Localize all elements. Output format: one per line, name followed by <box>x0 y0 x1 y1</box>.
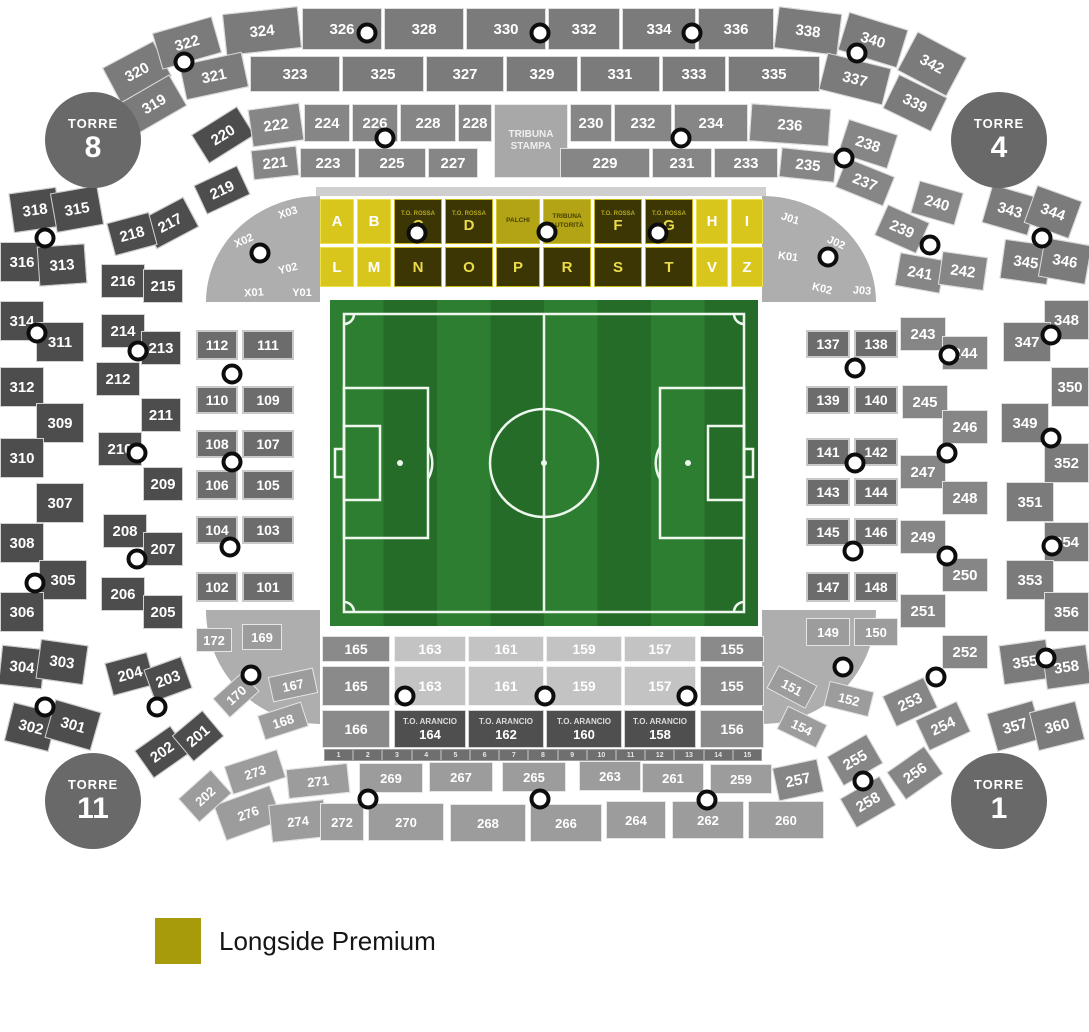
section-label: 237 <box>851 170 880 193</box>
section-328[interactable]: 328 <box>384 8 464 50</box>
section-143[interactable]: 143 <box>806 478 850 506</box>
section-label: A <box>332 214 343 229</box>
section-label: 358 <box>1053 658 1080 676</box>
section-label: 273 <box>243 762 268 781</box>
section-label: 270 <box>395 816 417 829</box>
section-label: 147 <box>816 580 839 594</box>
gate-marker <box>530 23 551 44</box>
section-label: 108 <box>205 437 228 451</box>
section-label: 202 <box>147 739 176 766</box>
section-palchi[interactable]: PALCHI <box>496 199 540 244</box>
section-label: 140 <box>864 393 887 407</box>
tower-number: 1 <box>991 792 1008 826</box>
section-label: 343 <box>996 199 1024 220</box>
section-label: 236 <box>777 117 803 134</box>
section-264[interactable]: 264 <box>606 801 666 839</box>
section-268[interactable]: 268 <box>450 804 526 842</box>
section-144[interactable]: 144 <box>854 478 898 506</box>
section-246[interactable]: 246 <box>942 410 988 444</box>
section-209[interactable]: 209 <box>143 467 183 501</box>
section-label: 263 <box>599 770 621 783</box>
section-212[interactable]: 212 <box>96 362 140 396</box>
section-label: 161 <box>494 642 517 656</box>
section-label: 217 <box>155 211 184 236</box>
section-325[interactable]: 325 <box>342 56 424 92</box>
section-147[interactable]: 147 <box>806 572 850 602</box>
section-106[interactable]: 106 <box>196 470 238 500</box>
section-i[interactable]: I <box>731 199 763 244</box>
section-label: 168 <box>271 711 296 730</box>
section-p[interactable]: P <box>496 247 540 287</box>
section-label: 162 <box>495 728 517 741</box>
tower-number: 11 <box>77 792 109 826</box>
section-label: 332 <box>571 22 596 37</box>
section-label: 312 <box>9 380 34 395</box>
section-303[interactable]: 303 <box>35 639 88 685</box>
section-137[interactable]: 137 <box>806 330 850 358</box>
section-274[interactable]: 274 <box>268 799 328 843</box>
section-315[interactable]: 315 <box>50 185 104 233</box>
section-160[interactable]: T.O. ARANCIO160 <box>546 710 622 748</box>
section-label: 344 <box>1039 201 1068 224</box>
section-241[interactable]: 241 <box>894 252 945 293</box>
section-324[interactable]: 324 <box>222 6 302 56</box>
section-m[interactable]: M <box>357 247 391 287</box>
section-label: 109 <box>256 393 279 407</box>
section-329[interactable]: 329 <box>506 56 578 92</box>
section-272[interactable]: 272 <box>320 803 364 841</box>
section-263[interactable]: 263 <box>579 761 641 791</box>
section-label: 165 <box>344 642 367 656</box>
section-216[interactable]: 216 <box>101 264 145 298</box>
section-label: 266 <box>555 817 577 830</box>
section-j03[interactable]: J03 <box>844 283 881 299</box>
section-257[interactable]: 257 <box>772 759 824 802</box>
section-label: 144 <box>864 485 887 499</box>
section-350[interactable]: 350 <box>1051 367 1089 407</box>
section-223[interactable]: 223 <box>300 148 356 178</box>
section-label: 233 <box>733 156 758 171</box>
section-label: 156 <box>720 722 743 736</box>
section-label: 245 <box>912 395 937 410</box>
gate-marker <box>671 128 692 149</box>
section-242[interactable]: 242 <box>938 251 988 291</box>
section-z[interactable]: Z <box>731 247 763 287</box>
section-label: 146 <box>864 525 887 539</box>
section-label: 231 <box>669 156 694 171</box>
section-label: 352 <box>1054 456 1079 471</box>
gate-marker <box>1032 228 1053 249</box>
section-label: 258 <box>853 789 882 815</box>
section-label: 328 <box>411 22 436 37</box>
section-163[interactable]: 163 <box>394 636 466 662</box>
section-f[interactable]: T.O. ROSSAF <box>594 199 642 244</box>
section-sublabel: T.O. ROSSA <box>401 211 435 217</box>
section-label: 139 <box>816 393 839 407</box>
section-label: 241 <box>906 263 933 282</box>
section-label: 159 <box>572 642 595 656</box>
section-107[interactable]: 107 <box>242 430 294 458</box>
section-159[interactable]: 159 <box>546 636 622 662</box>
section-266[interactable]: 266 <box>530 804 602 842</box>
section-label: 234 <box>698 116 723 131</box>
section-352[interactable]: 352 <box>1044 443 1089 483</box>
section-157[interactable]: 157 <box>624 636 696 662</box>
section-112[interactable]: 112 <box>196 330 238 360</box>
row-number-4: 4 <box>412 749 441 761</box>
section-305[interactable]: 305 <box>39 560 87 600</box>
section-label: 318 <box>22 201 49 219</box>
section-146[interactable]: 146 <box>854 518 898 546</box>
section-label: 201 <box>184 722 213 750</box>
gate-marker <box>35 228 56 249</box>
section-label: 251 <box>910 604 935 619</box>
section-v[interactable]: V <box>696 247 728 287</box>
section-d[interactable]: T.O. ROSSAD <box>445 199 493 244</box>
section-172[interactable]: 172 <box>196 628 232 652</box>
section-label: 172 <box>203 634 225 647</box>
row-number-14: 14 <box>704 749 733 761</box>
gate-marker <box>853 771 874 792</box>
section-label: 326 <box>329 22 354 37</box>
section-o[interactable]: O <box>445 247 493 287</box>
section-label: D <box>464 218 475 233</box>
section-207[interactable]: 207 <box>143 532 183 566</box>
section-332[interactable]: 332 <box>548 8 620 50</box>
gate-marker <box>357 23 378 44</box>
tower-1: TORRE1 <box>951 753 1047 849</box>
gate-marker <box>174 52 195 73</box>
section-label: 347 <box>1014 335 1039 350</box>
section-label: 218 <box>118 224 146 245</box>
gate-marker <box>833 657 854 678</box>
section-251[interactable]: 251 <box>900 594 946 628</box>
section-215[interactable]: 215 <box>143 269 183 303</box>
gate-marker <box>818 247 839 268</box>
section-label: 143 <box>816 485 839 499</box>
section-label: X01 <box>244 287 264 299</box>
section-229[interactable]: 229 <box>560 148 650 178</box>
section-162[interactable]: T.O. ARANCIO162 <box>468 710 544 748</box>
section-label: 203 <box>154 668 183 691</box>
section-313[interactable]: 313 <box>37 243 88 286</box>
gate-marker <box>845 453 866 474</box>
section-label: 101 <box>256 580 279 594</box>
section-s[interactable]: S <box>594 247 642 287</box>
section-label: 315 <box>63 199 90 218</box>
section-221[interactable]: 221 <box>251 146 300 181</box>
section-261[interactable]: 261 <box>642 763 704 793</box>
section-label: 163 <box>418 642 441 656</box>
section-l[interactable]: L <box>320 247 354 287</box>
section-label: 250 <box>952 568 977 583</box>
section-219[interactable]: 219 <box>193 165 250 214</box>
section-356[interactable]: 356 <box>1044 592 1089 632</box>
section-label: 204 <box>116 664 144 685</box>
section-227[interactable]: 227 <box>428 148 478 178</box>
section-label: 157 <box>648 642 671 656</box>
section-tribuna-stampa[interactable]: TRIBUNA STAMPA <box>494 104 568 178</box>
section-label: 301 <box>59 714 87 735</box>
section-335[interactable]: 335 <box>728 56 820 92</box>
section-166[interactable]: 166 <box>322 710 390 748</box>
section-308[interactable]: 308 <box>0 523 44 563</box>
section-338[interactable]: 338 <box>774 6 843 55</box>
section-y01[interactable]: Y01 <box>284 286 320 300</box>
section-360[interactable]: 360 <box>1029 701 1085 751</box>
section-205[interactable]: 205 <box>143 595 183 629</box>
section-label: 356 <box>1054 605 1079 620</box>
section-260[interactable]: 260 <box>748 801 824 839</box>
section-label: H <box>707 214 718 229</box>
section-label: 330 <box>493 22 518 37</box>
section-label: 249 <box>910 530 935 545</box>
section-148[interactable]: 148 <box>854 572 898 602</box>
section-155[interactable]: 155 <box>700 666 764 706</box>
gate-marker <box>35 697 56 718</box>
section-270[interactable]: 270 <box>368 803 444 841</box>
row-number-1: 1 <box>324 749 353 761</box>
section-323[interactable]: 323 <box>250 56 340 92</box>
section-252[interactable]: 252 <box>942 635 988 669</box>
section-233[interactable]: 233 <box>714 148 778 178</box>
section-161[interactable]: 161 <box>468 666 544 706</box>
section-label: 327 <box>452 67 477 82</box>
gate-marker <box>395 686 416 707</box>
section-label: 309 <box>47 416 72 431</box>
section-label: 207 <box>150 542 175 557</box>
section-label: 164 <box>419 728 441 741</box>
section-label: 333 <box>681 67 706 82</box>
arc-background <box>316 187 766 196</box>
section-label: 202 <box>193 784 218 808</box>
section-110[interactable]: 110 <box>196 386 238 414</box>
section-label: 102 <box>205 580 228 594</box>
section-label: 104 <box>205 523 228 537</box>
section-label: 325 <box>370 67 395 82</box>
section-155[interactable]: 155 <box>700 636 764 662</box>
section-label: 229 <box>592 156 617 171</box>
section-145[interactable]: 145 <box>806 518 850 546</box>
section-102[interactable]: 102 <box>196 572 238 602</box>
section-label: 310 <box>9 451 34 466</box>
section-161[interactable]: 161 <box>468 636 544 662</box>
section-225[interactable]: 225 <box>358 148 426 178</box>
section-235[interactable]: 235 <box>779 147 838 183</box>
section-a[interactable]: A <box>320 199 354 244</box>
tower-word: TORRE <box>68 777 118 792</box>
section-label: 242 <box>950 262 977 280</box>
section-138[interactable]: 138 <box>854 330 898 358</box>
section-label: I <box>745 214 749 229</box>
section-label: 303 <box>49 653 76 671</box>
section-158[interactable]: T.O. ARANCIO158 <box>624 710 696 748</box>
section-sublabel: T.O. ARANCIO <box>633 718 687 726</box>
section-label: 320 <box>122 60 151 85</box>
section-label: 111 <box>257 338 279 352</box>
section-265[interactable]: 265 <box>502 762 566 792</box>
section-220[interactable]: 220 <box>191 106 255 163</box>
section-label: 110 <box>206 393 229 407</box>
section-label: 259 <box>730 773 752 786</box>
gate-marker <box>843 541 864 562</box>
section-label: 161 <box>494 679 517 693</box>
section-164[interactable]: T.O. ARANCIO164 <box>394 710 466 748</box>
section-140[interactable]: 140 <box>854 386 898 414</box>
section-165[interactable]: 165 <box>322 636 390 662</box>
gate-marker <box>1042 536 1063 557</box>
section-331[interactable]: 331 <box>580 56 660 92</box>
gate-marker <box>535 686 556 707</box>
section-t[interactable]: T <box>645 247 693 287</box>
section-label: 137 <box>816 337 839 351</box>
section-228[interactable]: 228 <box>400 104 456 142</box>
section-label: 355 <box>1012 653 1039 671</box>
section-248[interactable]: 248 <box>942 481 988 515</box>
section-259[interactable]: 259 <box>710 764 772 794</box>
tower-word: TORRE <box>68 116 118 131</box>
section-105[interactable]: 105 <box>242 470 294 500</box>
section-111[interactable]: 111 <box>242 330 294 360</box>
section-141[interactable]: 141 <box>806 438 850 466</box>
section-label: 170 <box>224 683 249 707</box>
section-label: 157 <box>648 679 671 693</box>
section-307[interactable]: 307 <box>36 483 84 523</box>
gate-marker <box>375 128 396 149</box>
section-label: 316 <box>9 255 34 270</box>
gate-marker <box>407 223 428 244</box>
section-351[interactable]: 351 <box>1006 482 1054 522</box>
section-273[interactable]: 273 <box>224 749 287 795</box>
section-271[interactable]: 271 <box>286 763 351 799</box>
section-224[interactable]: 224 <box>304 104 350 142</box>
section-n[interactable]: N <box>394 247 442 287</box>
section-label: 141 <box>816 445 839 459</box>
section-label: 338 <box>795 22 822 40</box>
section-label: 342 <box>917 52 946 77</box>
section-203[interactable]: 203 <box>143 656 192 702</box>
section-sublabel: T.O. ROSSA <box>601 211 635 217</box>
section-label: TRIBUNA STAMPA <box>499 129 563 153</box>
section-267[interactable]: 267 <box>429 762 493 792</box>
section-218[interactable]: 218 <box>106 212 157 256</box>
gate-marker <box>697 790 718 811</box>
gate-marker <box>537 222 558 243</box>
section-label: 350 <box>1057 380 1082 395</box>
section-150[interactable]: 150 <box>854 618 898 646</box>
section-label: 158 <box>649 728 671 741</box>
gate-marker <box>127 549 148 570</box>
section-109[interactable]: 109 <box>242 386 294 414</box>
section-152[interactable]: 152 <box>824 681 875 717</box>
gate-marker <box>1036 648 1057 669</box>
section-310[interactable]: 310 <box>0 438 44 478</box>
section-label: 311 <box>48 335 72 350</box>
section-228[interactable]: 228 <box>458 104 492 142</box>
row-number-7: 7 <box>499 749 528 761</box>
section-206[interactable]: 206 <box>101 577 145 611</box>
section-101[interactable]: 101 <box>242 572 294 602</box>
section-label: 351 <box>1017 495 1042 510</box>
section-label: J03 <box>852 285 871 297</box>
section-label: 212 <box>105 372 130 387</box>
gate-marker <box>27 323 48 344</box>
section-label: 238 <box>854 133 882 155</box>
section-label: 346 <box>1051 251 1078 270</box>
section-label: 159 <box>572 679 595 693</box>
section-label: F <box>613 218 622 233</box>
section-label: 248 <box>952 491 977 506</box>
section-sublabel: T.O. ARANCIO <box>557 718 611 726</box>
section-236[interactable]: 236 <box>749 103 831 146</box>
section-label: 106 <box>205 478 228 492</box>
section-label: 256 <box>900 760 929 787</box>
section-208[interactable]: 208 <box>103 514 147 548</box>
section-label: 353 <box>1017 573 1042 588</box>
section-256[interactable]: 256 <box>886 746 943 800</box>
section-label: 319 <box>139 91 168 117</box>
section-label: 262 <box>697 814 719 827</box>
section-139[interactable]: 139 <box>806 386 850 414</box>
section-label: 337 <box>841 69 869 90</box>
section-344[interactable]: 344 <box>1024 185 1083 239</box>
section-156[interactable]: 156 <box>700 710 764 748</box>
section-232[interactable]: 232 <box>614 104 672 142</box>
section-label: 336 <box>723 22 748 37</box>
section-149[interactable]: 149 <box>806 618 850 646</box>
section-169[interactable]: 169 <box>242 624 282 650</box>
section-label: 219 <box>207 178 236 202</box>
section-309[interactable]: 309 <box>36 403 84 443</box>
section-label: 252 <box>952 645 977 660</box>
section-h[interactable]: H <box>696 199 728 244</box>
section-159[interactable]: 159 <box>546 666 622 706</box>
section-label: 257 <box>784 770 812 790</box>
section-x01[interactable]: X01 <box>236 285 273 301</box>
row-number-3: 3 <box>382 749 411 761</box>
gate-marker <box>222 364 243 385</box>
row-number-5: 5 <box>441 749 470 761</box>
section-label: 255 <box>840 747 869 773</box>
section-103[interactable]: 103 <box>242 516 294 544</box>
section-211[interactable]: 211 <box>141 398 181 432</box>
section-312[interactable]: 312 <box>0 367 44 407</box>
gate-marker <box>845 358 866 379</box>
gate-marker <box>648 223 669 244</box>
gate-marker <box>128 341 149 362</box>
section-154[interactable]: 154 <box>777 706 828 749</box>
row-number-2: 2 <box>353 749 382 761</box>
section-label: 209 <box>150 477 175 492</box>
gate-marker <box>1041 428 1062 449</box>
section-222[interactable]: 222 <box>248 103 305 148</box>
section-label: 253 <box>895 690 924 714</box>
section-243[interactable]: 243 <box>900 317 946 351</box>
section-306[interactable]: 306 <box>0 592 44 632</box>
section-b[interactable]: B <box>357 199 391 244</box>
section-165[interactable]: 165 <box>322 666 390 706</box>
section-label: 268 <box>477 817 499 830</box>
section-231[interactable]: 231 <box>652 148 712 178</box>
section-r[interactable]: R <box>543 247 591 287</box>
section-336[interactable]: 336 <box>698 8 774 50</box>
row-number-9: 9 <box>558 749 587 761</box>
section-333[interactable]: 333 <box>662 56 726 92</box>
section-230[interactable]: 230 <box>570 104 612 142</box>
section-label: 331 <box>607 67 632 82</box>
section-327[interactable]: 327 <box>426 56 504 92</box>
section-label: PALCHI <box>506 217 530 225</box>
